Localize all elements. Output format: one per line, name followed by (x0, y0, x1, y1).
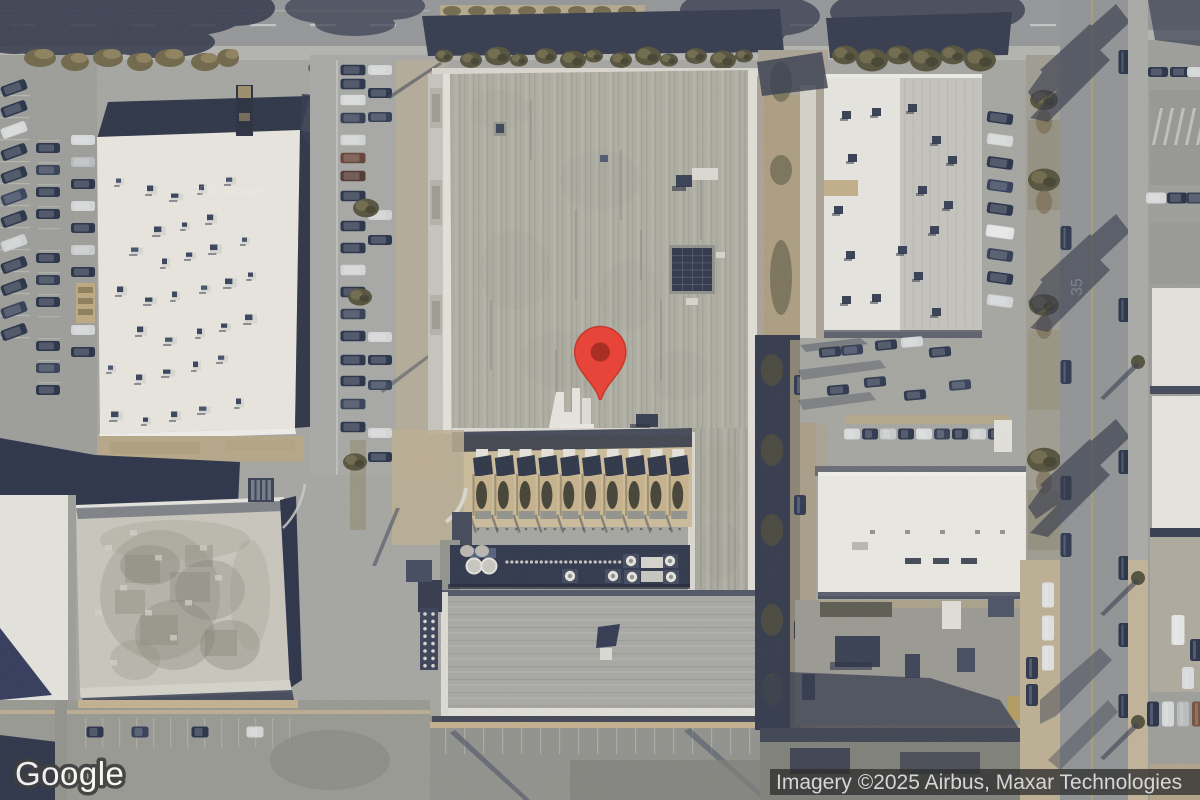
svg-text:Google: Google (15, 755, 124, 792)
svg-text:Imagery ©2025 Airbus, Maxar Te: Imagery ©2025 Airbus, Maxar Technologies (776, 771, 1182, 794)
